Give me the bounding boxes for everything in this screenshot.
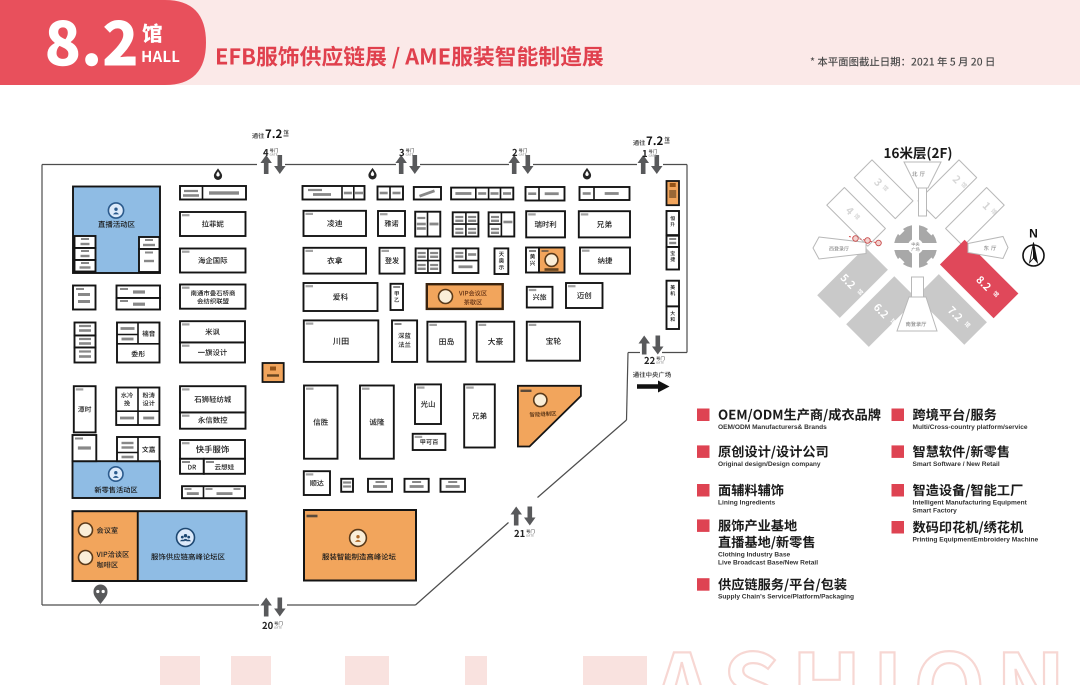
svg-text:Printing EquipmentEmbroidery M: Printing EquipmentEmbroidery Machine: [913, 537, 1039, 544]
svg-text:Smart Software / New Retail: Smart Software / New Retail: [913, 461, 1000, 468]
svg-text:Smart Factory: Smart Factory: [913, 508, 958, 515]
svg-text:Supply Chain's Service/Platfor: Supply Chain's Service/Platform/Packagin…: [718, 594, 854, 601]
svg-text:Lining Ingredients: Lining Ingredients: [718, 500, 775, 507]
svg-text:Original design/Design company: Original design/Design company: [718, 461, 821, 468]
svg-text:Clothing Industry Base: Clothing Industry Base: [718, 551, 791, 558]
svg-text:N: N: [1029, 227, 1038, 241]
svg-text:OEM/ODM Manufacturers& Brands: OEM/ODM Manufacturers& Brands: [718, 424, 827, 431]
svg-text:Live Broadcast Base/New Retail: Live Broadcast Base/New Retail: [718, 559, 818, 566]
svg-text:Intelligent Manufacturing Equi: Intelligent Manufacturing Equipment: [913, 500, 1028, 507]
svg-text:Multi/Cross-country platform/s: Multi/Cross-country platform/service: [913, 424, 1028, 431]
